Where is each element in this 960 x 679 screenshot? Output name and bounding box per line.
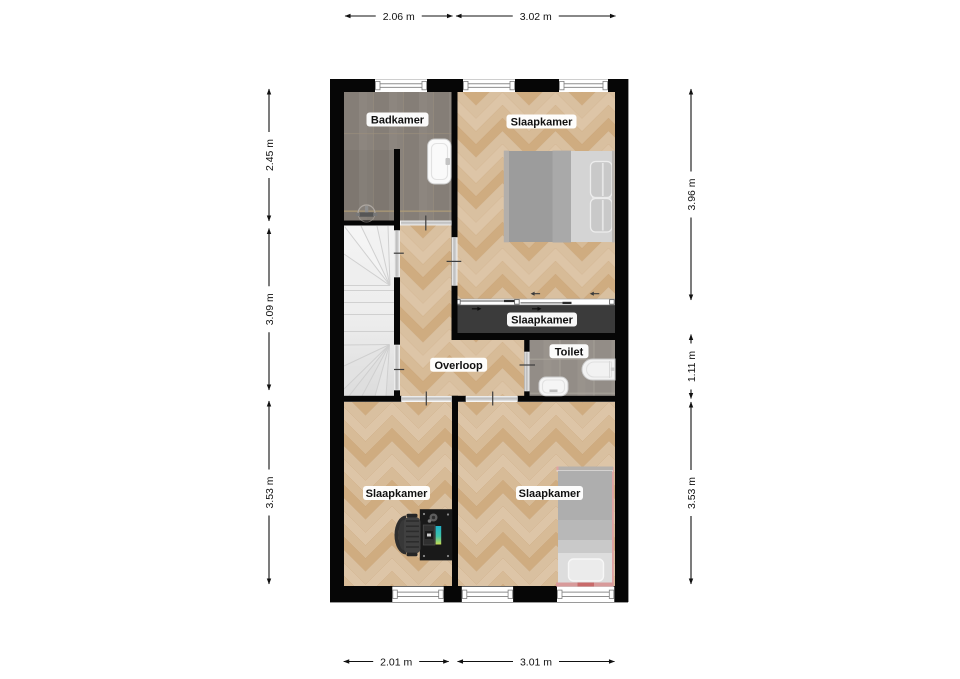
- svg-text:3.02 m: 3.02 m: [520, 11, 552, 23]
- svg-text:3.53 m: 3.53 m: [264, 476, 276, 508]
- svg-text:2.06 m: 2.06 m: [383, 11, 415, 23]
- svg-text:2.45 m: 2.45 m: [264, 139, 276, 171]
- svg-text:3.01 m: 3.01 m: [520, 657, 552, 669]
- svg-text:Slaapkamer: Slaapkamer: [519, 488, 581, 500]
- svg-text:Badkamer: Badkamer: [371, 115, 425, 127]
- svg-text:Slaapkamer: Slaapkamer: [366, 488, 428, 500]
- svg-text:1.11 m: 1.11 m: [686, 351, 698, 383]
- svg-text:Slaapkamer: Slaapkamer: [511, 315, 573, 327]
- svg-text:Slaapkamer: Slaapkamer: [511, 117, 573, 129]
- svg-text:3.96 m: 3.96 m: [686, 178, 698, 210]
- svg-text:2.01 m: 2.01 m: [380, 657, 412, 669]
- svg-text:3.09 m: 3.09 m: [264, 293, 276, 325]
- svg-text:Overloop: Overloop: [434, 360, 483, 372]
- svg-text:Toilet: Toilet: [555, 346, 584, 358]
- svg-text:3.53 m: 3.53 m: [686, 477, 698, 509]
